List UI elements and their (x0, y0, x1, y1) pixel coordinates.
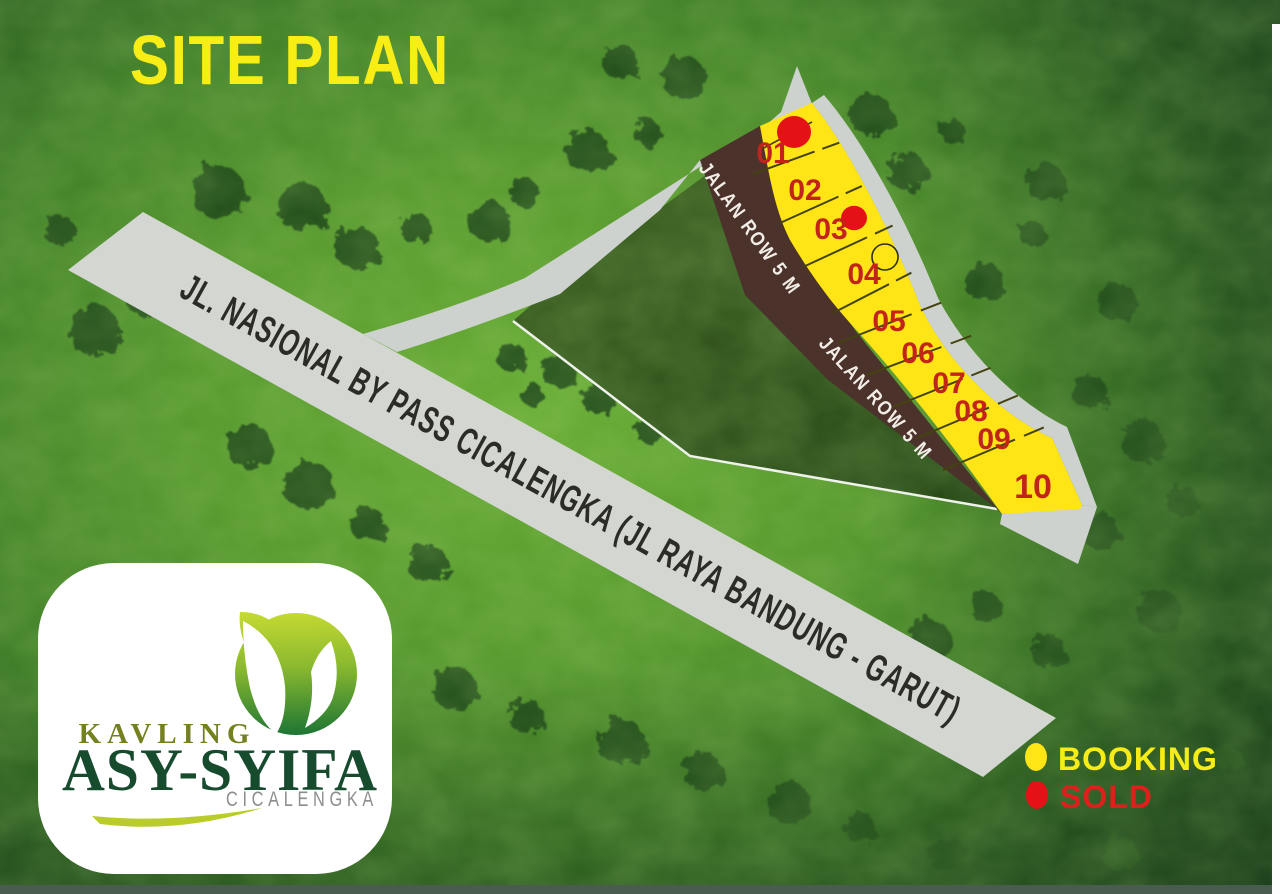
legend-sold-dot-icon (1026, 781, 1048, 809)
logo-city-text: CICALENGKA (226, 788, 378, 811)
legend-booking-dot-icon (1025, 743, 1047, 771)
legend-sold-label: SOLD (1060, 779, 1153, 815)
plot-number: 06 (901, 337, 934, 370)
legend-booking-label: BOOKING (1058, 741, 1218, 777)
plot-number: 10 (1014, 468, 1052, 506)
plot-number: 02 (788, 174, 821, 207)
site-plan-canvas: 01020304050607080910 JL. NASIONAL BY PAS… (0, 0, 1280, 894)
page-title: SITE PLAN (130, 21, 450, 99)
plot-number: 04 (847, 258, 881, 291)
plot-number: 03 (814, 213, 847, 246)
site-plan-svg: 01020304050607080910 JL. NASIONAL BY PAS… (0, 0, 1280, 894)
logo-card: KAVLING ASY-SYIFA CICALENGKA (38, 563, 392, 874)
plot-number: 01 (756, 137, 789, 170)
plot-number: 09 (977, 423, 1010, 456)
right-edge-strip (1272, 24, 1280, 894)
plot-number: 05 (872, 305, 905, 338)
bottom-edge-strip (0, 885, 1272, 894)
